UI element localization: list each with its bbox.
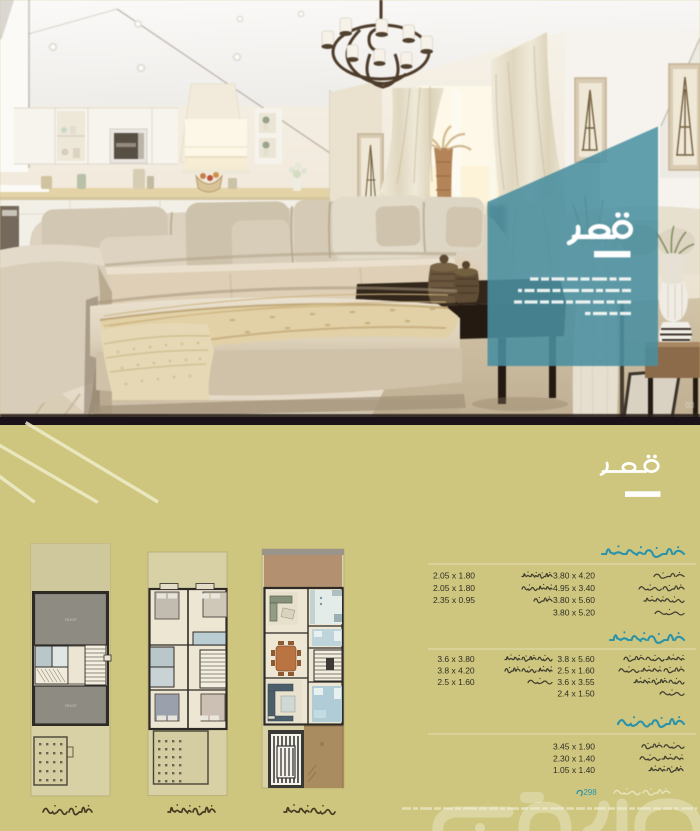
svg-text:2.05 x 1.80: 2.05 x 1.80 bbox=[433, 583, 475, 593]
svg-text:3.6 x 3.80: 3.6 x 3.80 bbox=[437, 654, 475, 664]
svg-text:2.05 x 1.80: 2.05 x 1.80 bbox=[433, 571, 475, 581]
svg-text:3.80 x 4.20: 3.80 x 4.20 bbox=[553, 571, 595, 581]
svg-text:2.5 x 1.60: 2.5 x 1.60 bbox=[557, 666, 595, 676]
svg-text:03: 03 bbox=[686, 401, 695, 410]
svg-text:3.80 x 5.20: 3.80 x 5.20 bbox=[553, 608, 595, 618]
svg-text:4.95 x 3.40: 4.95 x 3.40 bbox=[553, 583, 595, 593]
svg-text:3.80 x 5.60: 3.80 x 5.60 bbox=[553, 595, 595, 605]
svg-text:1.05 x 1.40: 1.05 x 1.40 bbox=[553, 765, 595, 775]
svg-text:ROOF: ROOF bbox=[65, 703, 77, 708]
svg-text:3.8 x 4.20: 3.8 x 4.20 bbox=[437, 666, 475, 676]
svg-text:2.35 x 0.95: 2.35 x 0.95 bbox=[433, 595, 475, 605]
svg-text:2.4 x 1.50: 2.4 x 1.50 bbox=[557, 689, 595, 699]
svg-text:ROOF: ROOF bbox=[65, 617, 77, 622]
svg-text:298: 298 bbox=[583, 788, 597, 797]
svg-text:3.8 x 5.60: 3.8 x 5.60 bbox=[557, 654, 595, 664]
svg-text:2.5 x 1.60: 2.5 x 1.60 bbox=[437, 677, 475, 687]
svg-text:3.6 x 3.55: 3.6 x 3.55 bbox=[557, 677, 595, 687]
svg-text:2.30 x 1.40: 2.30 x 1.40 bbox=[553, 754, 595, 764]
svg-text:3.45 x 1.90: 3.45 x 1.90 bbox=[553, 742, 595, 752]
